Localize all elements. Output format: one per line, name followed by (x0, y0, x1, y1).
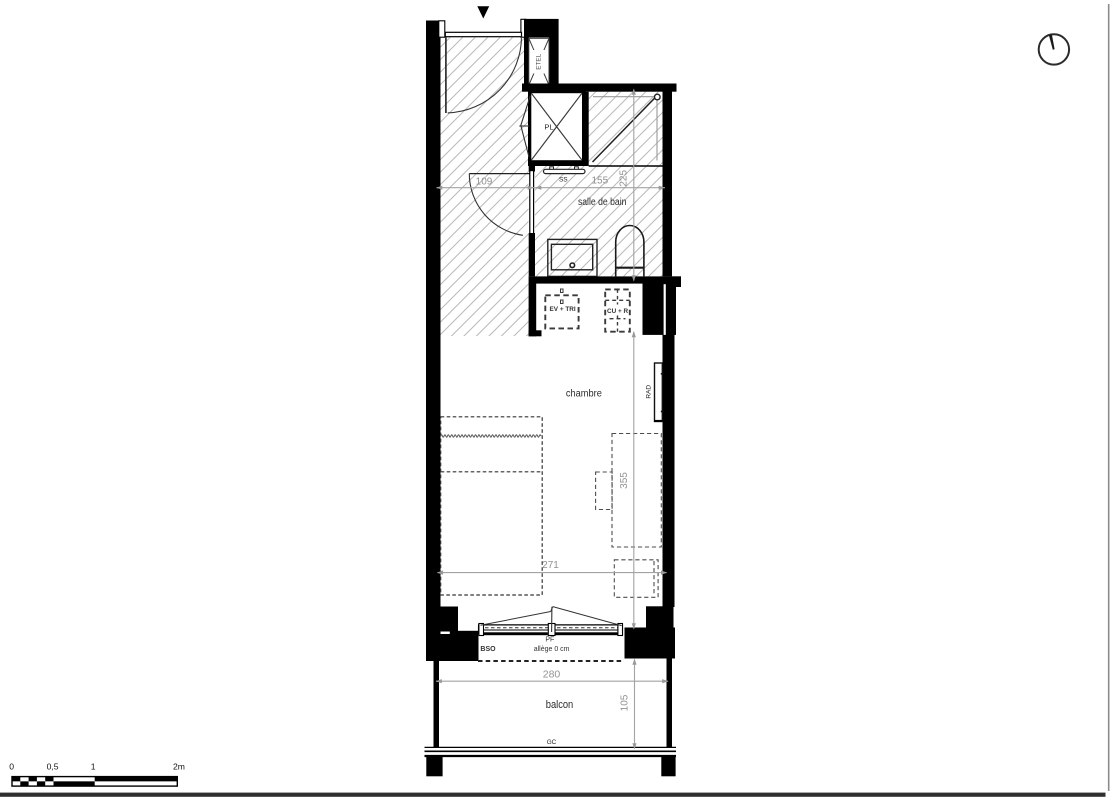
svg-text:2m: 2m (173, 762, 185, 772)
svg-text:SS: SS (559, 177, 568, 184)
svg-text:280: 280 (543, 669, 561, 681)
svg-text:ETEL: ETEL (536, 53, 543, 69)
svg-text:PL: PL (544, 122, 553, 131)
svg-text:BSO: BSO (480, 646, 496, 653)
svg-text:0,5: 0,5 (47, 762, 59, 772)
svg-text:355: 355 (619, 472, 630, 489)
svg-text:allège 0 cm: allège 0 cm (534, 646, 570, 653)
svg-text:155: 155 (591, 176, 608, 187)
svg-text:salle de bain: salle de bain (578, 197, 627, 208)
svg-text:CU + R: CU + R (607, 308, 629, 315)
svg-text:0: 0 (9, 762, 14, 772)
svg-text:109: 109 (476, 177, 493, 188)
svg-text:105: 105 (620, 694, 631, 711)
svg-text:GC: GC (547, 739, 557, 746)
svg-text:EV + TRI: EV + TRI (550, 306, 576, 313)
svg-text:RAD: RAD (646, 385, 653, 399)
svg-text:271: 271 (542, 560, 559, 571)
svg-text:balcon: balcon (546, 699, 574, 711)
svg-text:225: 225 (619, 170, 630, 187)
svg-text:PF: PF (545, 637, 554, 644)
svg-text:chambre: chambre (566, 388, 602, 399)
svg-text:1: 1 (91, 762, 96, 772)
